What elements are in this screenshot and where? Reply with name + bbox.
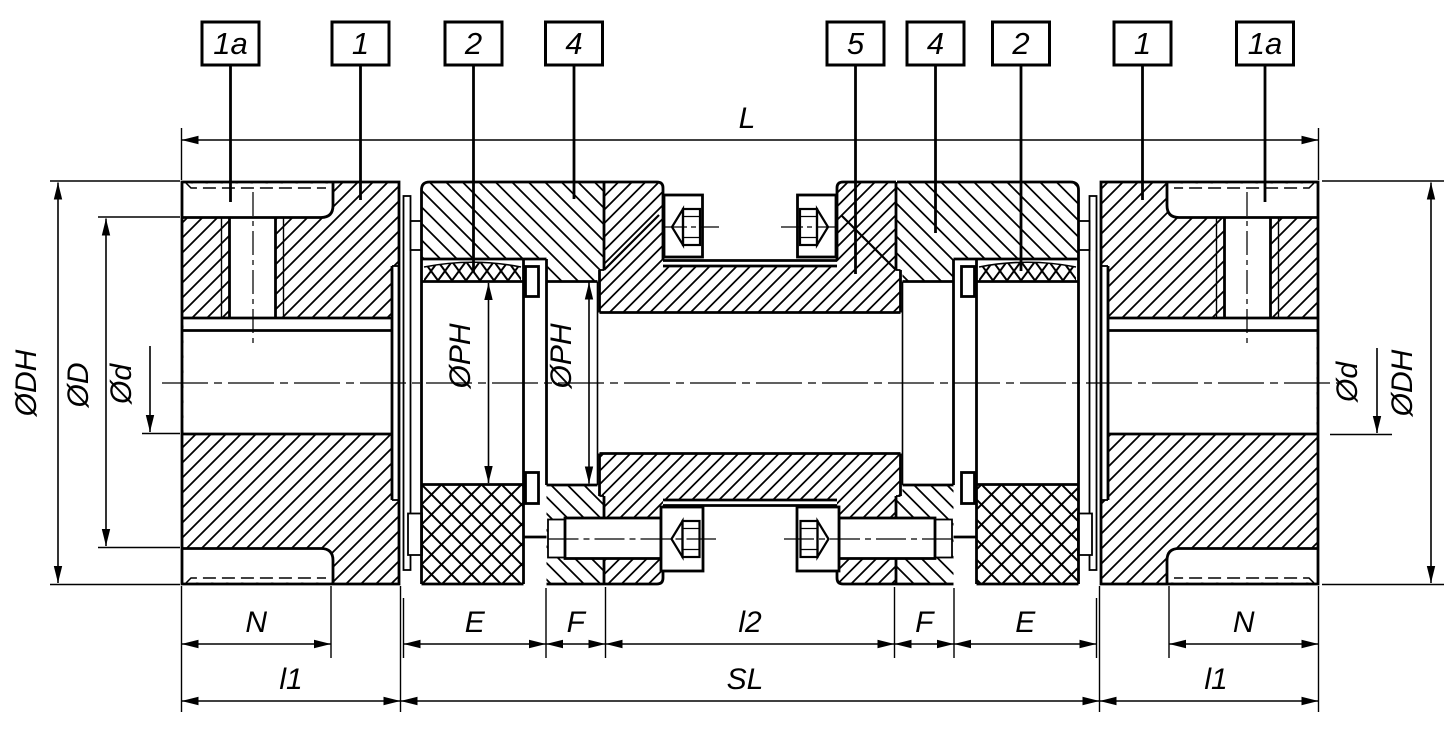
svg-text:ØDH: ØDH xyxy=(1386,349,1419,417)
svg-text:1: 1 xyxy=(1134,26,1151,61)
svg-text:Ød: Ød xyxy=(105,363,138,405)
svg-text:ØD: ØD xyxy=(62,363,95,409)
svg-text:ØDH: ØDH xyxy=(10,349,43,417)
svg-text:N: N xyxy=(245,606,267,639)
svg-text:4: 4 xyxy=(927,26,944,61)
svg-text:1a: 1a xyxy=(213,26,247,61)
svg-text:L: L xyxy=(739,102,756,135)
svg-text:Ød: Ød xyxy=(1331,361,1364,403)
svg-text:5: 5 xyxy=(847,26,865,61)
svg-text:2: 2 xyxy=(1011,26,1029,61)
svg-text:F: F xyxy=(915,606,935,639)
svg-text:ØPH: ØPH xyxy=(545,323,578,389)
svg-text:1a: 1a xyxy=(1248,26,1282,61)
svg-text:F: F xyxy=(567,606,587,639)
svg-text:l1: l1 xyxy=(1204,663,1227,696)
svg-text:4: 4 xyxy=(565,26,582,61)
svg-text:SL: SL xyxy=(727,663,764,696)
svg-text:l2: l2 xyxy=(738,606,762,639)
svg-text:ØPH: ØPH xyxy=(444,323,477,389)
svg-text:N: N xyxy=(1233,606,1255,639)
svg-text:2: 2 xyxy=(464,26,482,61)
svg-text:E: E xyxy=(1015,606,1036,639)
svg-text:E: E xyxy=(465,606,486,639)
svg-text:1: 1 xyxy=(352,26,369,61)
svg-text:l1: l1 xyxy=(279,663,302,696)
